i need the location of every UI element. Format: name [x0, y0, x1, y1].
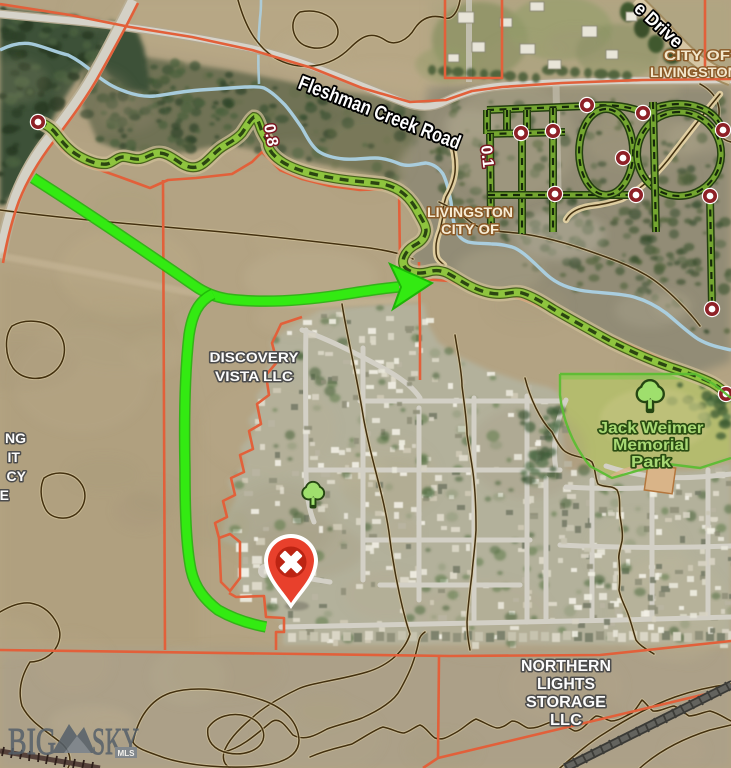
- svg-text:Jack Weimer: Jack Weimer: [599, 420, 704, 437]
- svg-text:DISCOVERY: DISCOVERY: [210, 349, 300, 365]
- svg-text:BIG: BIG: [8, 721, 56, 763]
- svg-text:CITY OF: CITY OF: [664, 48, 730, 63]
- svg-text:CY: CY: [7, 468, 27, 484]
- svg-text:LIGHTS: LIGHTS: [537, 676, 595, 693]
- svg-text:Memorial: Memorial: [613, 437, 689, 454]
- svg-text:IT: IT: [8, 449, 21, 465]
- svg-text:VISTA LLC: VISTA LLC: [215, 368, 293, 384]
- svg-text:NG: NG: [5, 430, 26, 446]
- svg-text:Park: Park: [631, 454, 671, 471]
- svg-text:CITY OF: CITY OF: [441, 221, 499, 237]
- svg-text:LIVINGSTON: LIVINGSTON: [650, 65, 731, 80]
- svg-text:NORTHERN: NORTHERN: [521, 658, 611, 675]
- svg-text:LLC: LLC: [550, 712, 582, 729]
- svg-text:STORAGE: STORAGE: [526, 694, 606, 711]
- svg-text:LIVINGSTON: LIVINGSTON: [427, 204, 513, 220]
- svg-text:MLS: MLS: [118, 749, 136, 758]
- svg-text:E: E: [0, 487, 9, 503]
- svg-text:0.1: 0.1: [477, 145, 496, 169]
